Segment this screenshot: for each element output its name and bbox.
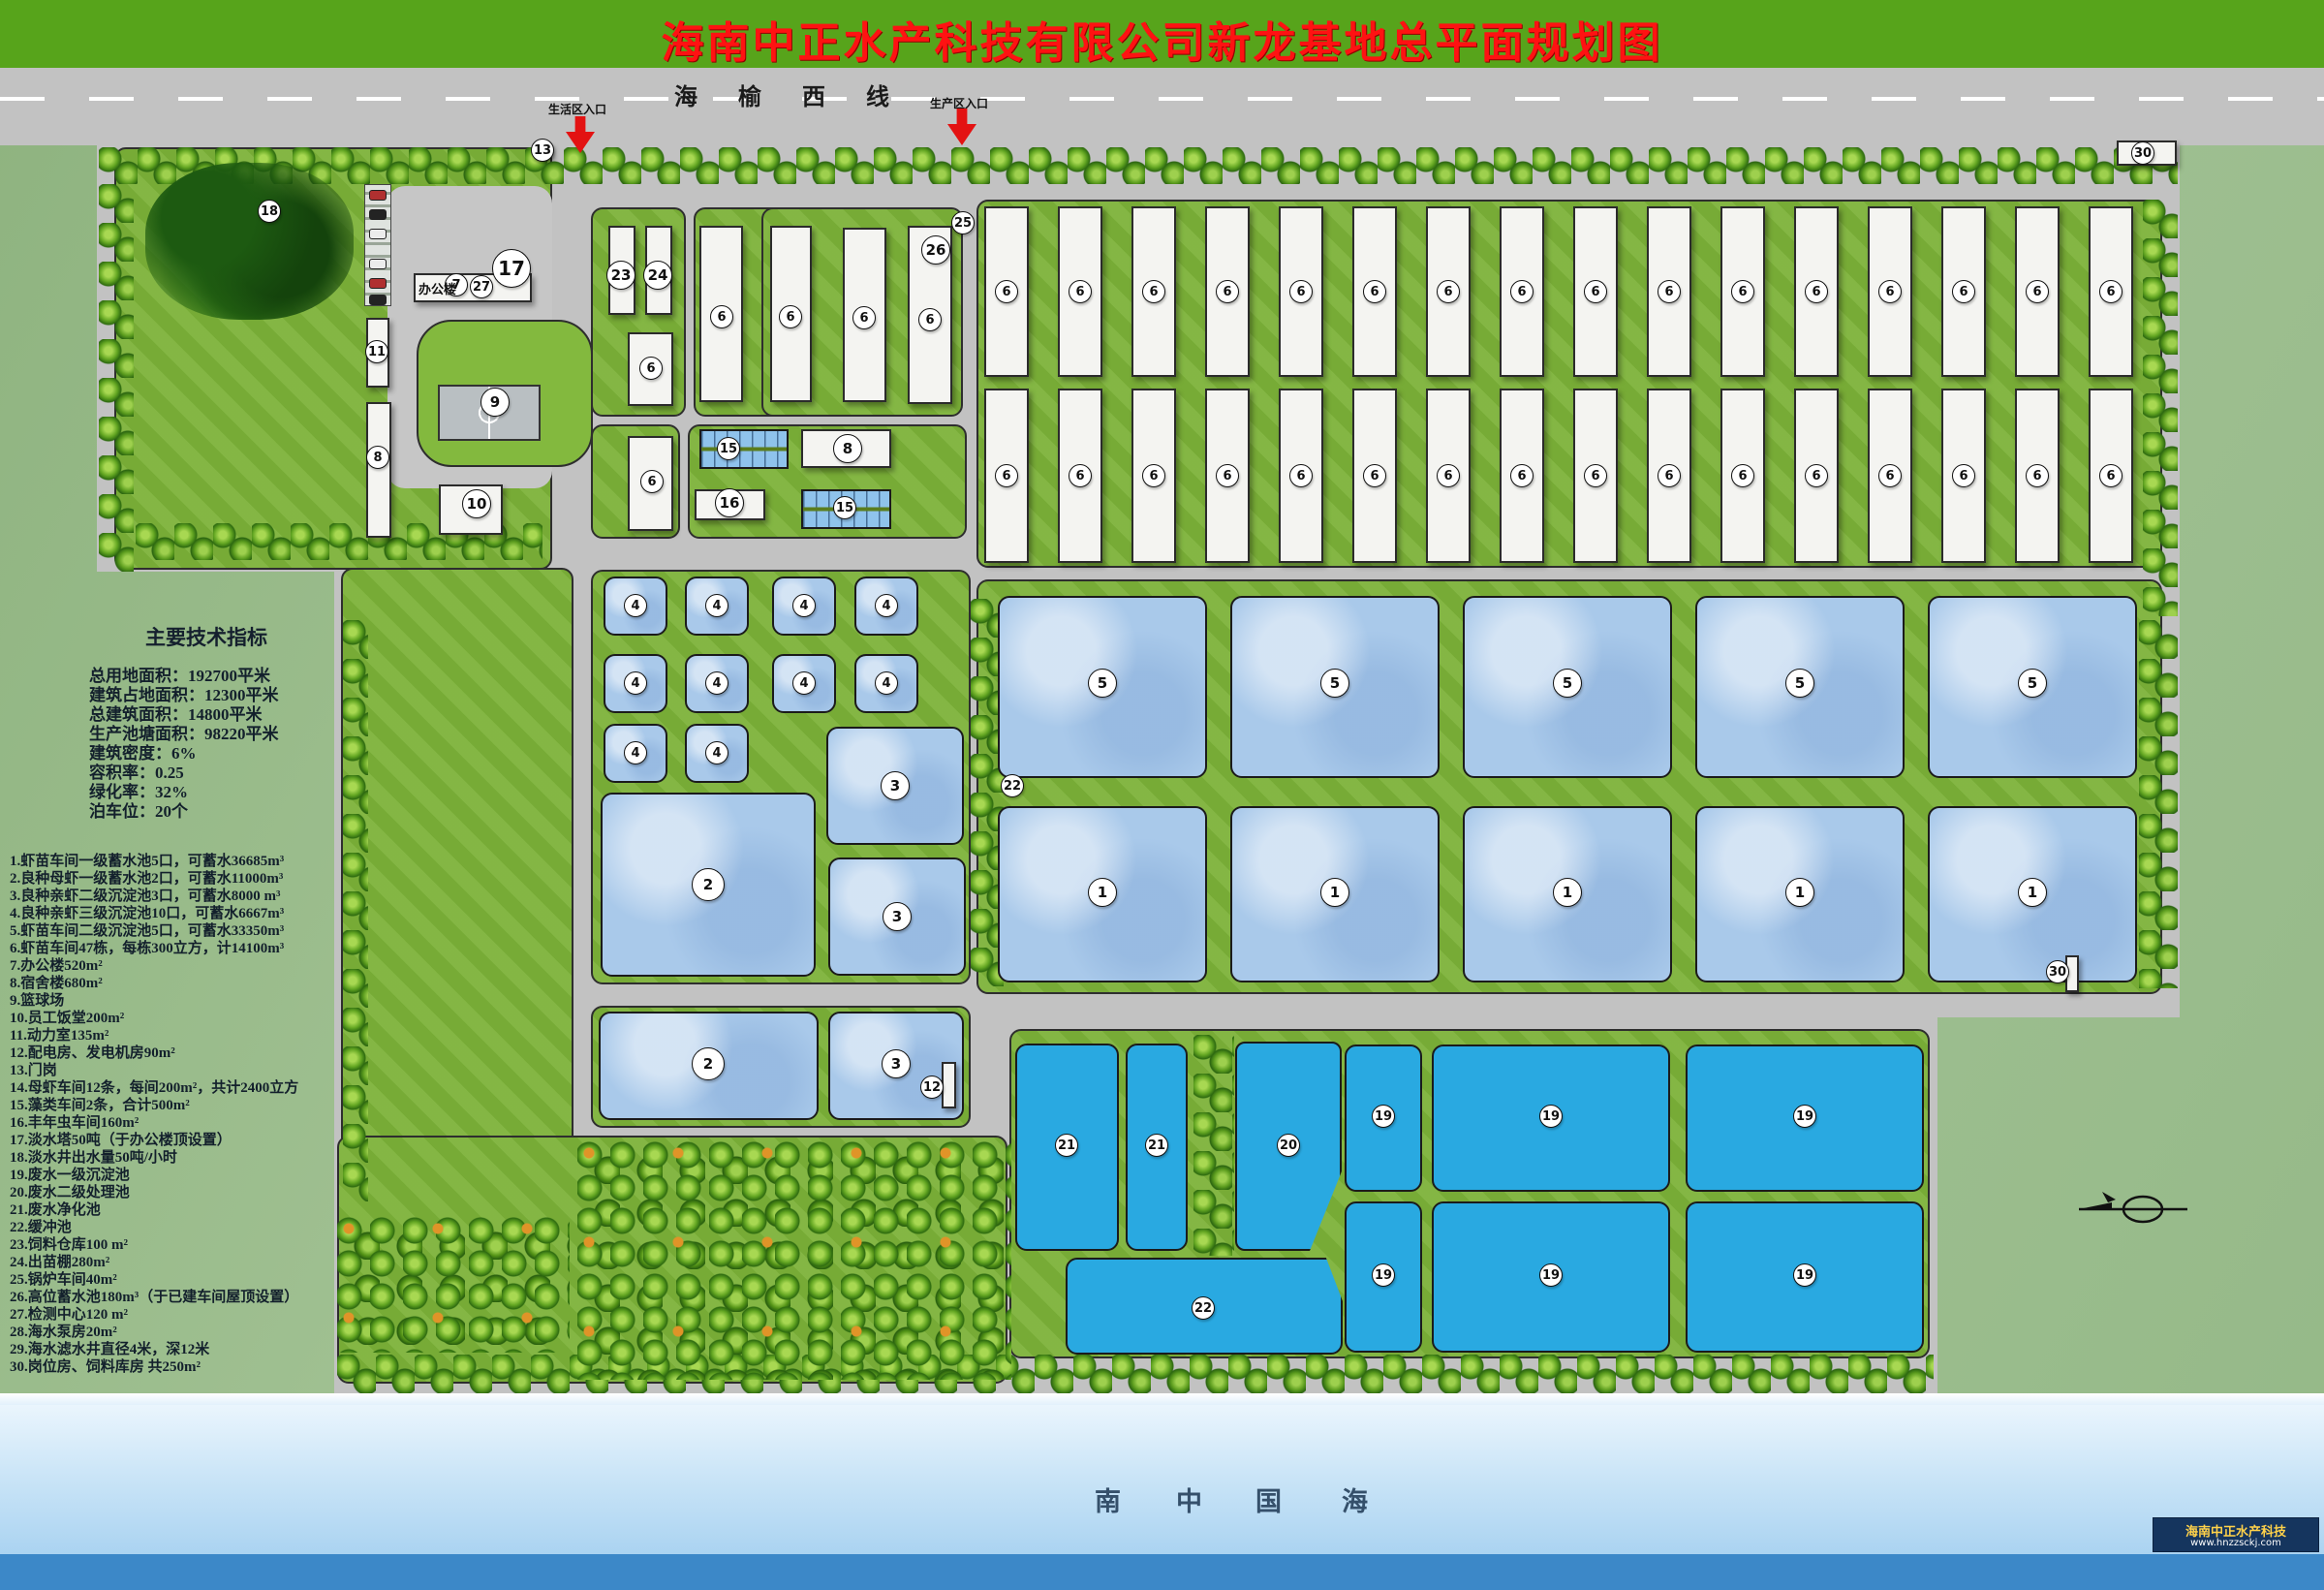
legend-item: 9.篮球场 [10, 992, 339, 1010]
legend-item: 1.虾苗车间一级蓄水池5口，可蓄水36685m³ [10, 853, 339, 870]
marker-13: 13 [531, 139, 554, 162]
marker-6: 6 [1363, 464, 1386, 487]
legend-item: 7.办公楼520m² [10, 957, 339, 975]
marker-21: 21 [1145, 1134, 1168, 1157]
sea-name-char: 国 [1255, 1481, 1282, 1518]
marker-6: 6 [1658, 280, 1681, 303]
marker-15: 15 [717, 437, 740, 460]
marker-10: 10 [462, 489, 491, 518]
parking-lot [364, 184, 391, 306]
marker-27: 27 [470, 275, 493, 298]
marker-1: 1 [2018, 878, 2047, 907]
marker-6: 6 [710, 305, 733, 328]
marker-3: 3 [883, 902, 912, 931]
marker-19: 19 [1793, 1263, 1816, 1287]
marker-6: 6 [1952, 280, 1975, 303]
indicator-line: 绿化率：32% [89, 783, 331, 802]
marker-1: 1 [1785, 878, 1814, 907]
marker-6: 6 [1584, 464, 1607, 487]
legend-item: 18.淡水井出水量50吨/小时 [10, 1149, 339, 1167]
marker-1: 1 [1088, 878, 1117, 907]
marker-4: 4 [624, 671, 647, 695]
marker-21: 21 [1055, 1134, 1078, 1157]
entrance-left-label: 生活区入口 [548, 101, 606, 117]
legend-item: 15.藻类车间2条，合计500m² [10, 1097, 339, 1114]
marker-6: 6 [1437, 280, 1460, 303]
legend-list: 1.虾苗车间一级蓄水池5口，可蓄水36685m³2.良种母虾一级蓄水池2口，可蓄… [10, 853, 339, 1376]
sea-bottom-bar [0, 1554, 2324, 1590]
marker-4: 4 [792, 671, 816, 695]
generator-room-12 [942, 1062, 956, 1108]
marker-4: 4 [705, 671, 728, 695]
marker-3: 3 [881, 771, 910, 800]
marker-19: 19 [1793, 1105, 1816, 1128]
tree-border [343, 620, 368, 1201]
map-layer: 1813177271189102324252666666615816154444… [0, 0, 2324, 1590]
sea-name-char: 中 [1176, 1481, 1202, 1518]
parked-car [369, 259, 387, 269]
indicator-line: 建筑密度：6% [89, 744, 331, 764]
marker-2: 2 [692, 1047, 725, 1080]
marker-5: 5 [1785, 669, 1814, 698]
marker-4: 4 [624, 594, 647, 617]
marker-2: 2 [692, 868, 725, 901]
marker-6: 6 [639, 357, 663, 380]
marker-6: 6 [1584, 280, 1607, 303]
marker-5: 5 [1553, 669, 1582, 698]
legend-item: 23.饲料仓库100 m² [10, 1236, 339, 1254]
parked-car [369, 209, 387, 220]
technical-indicators-panel: 主要技术指标 总用地面积：192700平米建筑占地面积：12300平米总建筑面积… [85, 622, 327, 822]
legend-item: 29.海水滤水井直径4米，深12米 [10, 1341, 339, 1358]
marker-6: 6 [1952, 464, 1975, 487]
legend-item: 11.动力室135m² [10, 1027, 339, 1044]
legend-item: 5.虾苗车间二级沉淀池5口，可蓄水33350m³ [10, 922, 339, 940]
marker-4: 4 [705, 594, 728, 617]
road-center-line [0, 97, 2324, 101]
marker-19: 19 [1539, 1105, 1563, 1128]
sea-name-char: 南 [1095, 1481, 1121, 1518]
legend-item: 2.良种母虾一级蓄水池2口，可蓄水11000m³ [10, 870, 339, 888]
marker-4: 4 [792, 594, 816, 617]
marker-5: 5 [1320, 669, 1349, 698]
parked-car [369, 190, 387, 201]
tree-border [2143, 200, 2178, 616]
indicators-title: 主要技术指标 [85, 622, 327, 651]
marker-16: 16 [715, 488, 744, 517]
marker-6: 6 [1069, 280, 1092, 303]
marker-6: 6 [2026, 464, 2049, 487]
marker-6: 6 [1289, 464, 1313, 487]
parked-car [369, 295, 387, 305]
grass-block [341, 568, 573, 1209]
marker-6: 6 [1510, 464, 1534, 487]
legend-item: 20.废水二级处理池 [10, 1184, 339, 1201]
legend-item: 27.检测中心120 m² [10, 1306, 339, 1324]
marker-6: 6 [1731, 464, 1754, 487]
marker-6: 6 [1878, 464, 1902, 487]
marker-25: 25 [951, 211, 975, 234]
indicator-line: 泊车位：20个 [89, 802, 331, 822]
dormitory-8 [366, 402, 391, 538]
legend-item: 21.废水净化池 [10, 1201, 339, 1219]
legend-item: 28.海水泵房20m² [10, 1324, 339, 1341]
marker-4: 4 [875, 671, 898, 695]
marker-6: 6 [1437, 464, 1460, 487]
marker-6: 6 [918, 308, 942, 331]
marker-8: 8 [833, 434, 862, 463]
site-plan-canvas: 海南中正水产科技有限公司新龙基地总平面规划图 18131772711891023… [0, 0, 2324, 1590]
marker-19: 19 [1372, 1263, 1395, 1287]
marker-6: 6 [1069, 464, 1092, 487]
marker-30: 30 [2046, 960, 2069, 983]
marker-12: 12 [920, 1076, 944, 1099]
indicator-line: 总用地面积：192700平米 [89, 667, 331, 686]
marker-5: 5 [1088, 669, 1117, 698]
marker-6: 6 [1510, 280, 1534, 303]
indicator-line: 容积率：0.25 [89, 764, 331, 783]
marker-3: 3 [882, 1049, 911, 1078]
marker-6: 6 [1216, 280, 1239, 303]
parked-car [369, 278, 387, 289]
road-area [0, 68, 2324, 145]
indicator-line: 生产池塘面积：98220平米 [89, 725, 331, 744]
watermark-url: www.hnzzsckj.com [2154, 1538, 2318, 1548]
marker-1: 1 [1320, 878, 1349, 907]
marker-6: 6 [2026, 280, 2049, 303]
tree-border [99, 147, 2178, 184]
marker-5: 5 [2018, 669, 2047, 698]
marker-6: 6 [1289, 280, 1313, 303]
marker-24: 24 [643, 261, 672, 290]
parked-car [369, 229, 387, 239]
marker-4: 4 [875, 594, 898, 617]
marker-6: 6 [2099, 280, 2123, 303]
legend-item: 13.门岗 [10, 1062, 339, 1079]
marker-1: 1 [1553, 878, 1582, 907]
legend-item: 17.淡水塔50吨（于办公楼顶设置） [10, 1132, 339, 1149]
marker-6: 6 [995, 280, 1018, 303]
marker-23: 23 [606, 261, 635, 290]
legend-item: 22.缓冲池 [10, 1219, 339, 1236]
marker-30: 30 [2131, 141, 2154, 165]
marker-6: 6 [1658, 464, 1681, 487]
indicator-line: 建筑占地面积：12300平米 [89, 686, 331, 705]
marker-6: 6 [1805, 280, 1828, 303]
marker-6: 6 [1805, 464, 1828, 487]
marker-6: 6 [1878, 280, 1902, 303]
marker-6: 6 [1731, 280, 1754, 303]
compass-icon [2073, 1170, 2189, 1238]
tree-border [2139, 620, 2178, 988]
marker-6: 6 [852, 306, 876, 329]
marker-6: 6 [779, 305, 802, 328]
legend-item: 19.废水一级沉淀池 [10, 1167, 339, 1184]
forest-area [337, 1217, 570, 1353]
tree-border [99, 184, 134, 572]
legend-item: 26.高位蓄水池180m³（于已建车间屋顶设置） [10, 1289, 339, 1306]
marker-8: 8 [366, 446, 389, 469]
marker-17: 17 [492, 249, 531, 288]
tree-border [1193, 1035, 1234, 1256]
marker-11: 11 [365, 340, 388, 363]
legend-item: 14.母虾车间12条，每间200m²，共计2400立方 [10, 1079, 339, 1097]
marker-22: 22 [1001, 774, 1024, 797]
marker-19: 19 [1539, 1263, 1563, 1287]
sea-name-char: 海 [1342, 1481, 1368, 1518]
marker-6: 6 [1142, 464, 1165, 487]
legend-item: 3.良种亲虾二级沉淀池3口，可蓄水8000 m³ [10, 888, 339, 905]
algae-workshop-15 [699, 429, 789, 469]
marker-6: 6 [1363, 280, 1386, 303]
marker-6: 6 [640, 470, 664, 493]
marker-4: 4 [705, 741, 728, 764]
legend-item: 24.出苗棚280m² [10, 1254, 339, 1271]
company-watermark: 海南中正水产科技 www.hnzzsckj.com [2153, 1517, 2319, 1552]
office-building-label: 办公楼 [418, 279, 456, 297]
legend-item: 16.丰年虫车间160m² [10, 1114, 339, 1132]
marker-26: 26 [921, 235, 950, 265]
forest-area [577, 1141, 1011, 1380]
marker-15: 15 [833, 496, 856, 519]
marker-22: 22 [1192, 1296, 1215, 1320]
marker-6: 6 [1142, 280, 1165, 303]
road-name-label: 海榆西线 [674, 78, 930, 111]
palm-grove-18 [145, 163, 354, 320]
legend-item: 6.虾苗车间47栋，每栋300立方，计14100m³ [10, 940, 339, 957]
marker-18: 18 [258, 200, 281, 223]
marker-6: 6 [1216, 464, 1239, 487]
legend-item: 12.配电房、发电机房90m² [10, 1044, 339, 1062]
legend-item: 30.岗位房、饲料库房 共250m² [10, 1358, 339, 1376]
legend-item: 25.锅炉车间40m² [10, 1271, 339, 1289]
marker-9: 9 [480, 388, 510, 417]
marker-6: 6 [995, 464, 1018, 487]
indicator-line: 总建筑面积：14800平米 [89, 705, 331, 725]
marker-20: 20 [1277, 1134, 1300, 1157]
legend-item: 8.宿舍楼680m² [10, 975, 339, 992]
marker-19: 19 [1372, 1105, 1395, 1128]
marker-4: 4 [624, 741, 647, 764]
legend-item: 10.员工饭堂200m² [10, 1010, 339, 1027]
legend-item: 4.良种亲虾三级沉淀池10口，可蓄水6667m³ [10, 905, 339, 922]
marker-6: 6 [2099, 464, 2123, 487]
